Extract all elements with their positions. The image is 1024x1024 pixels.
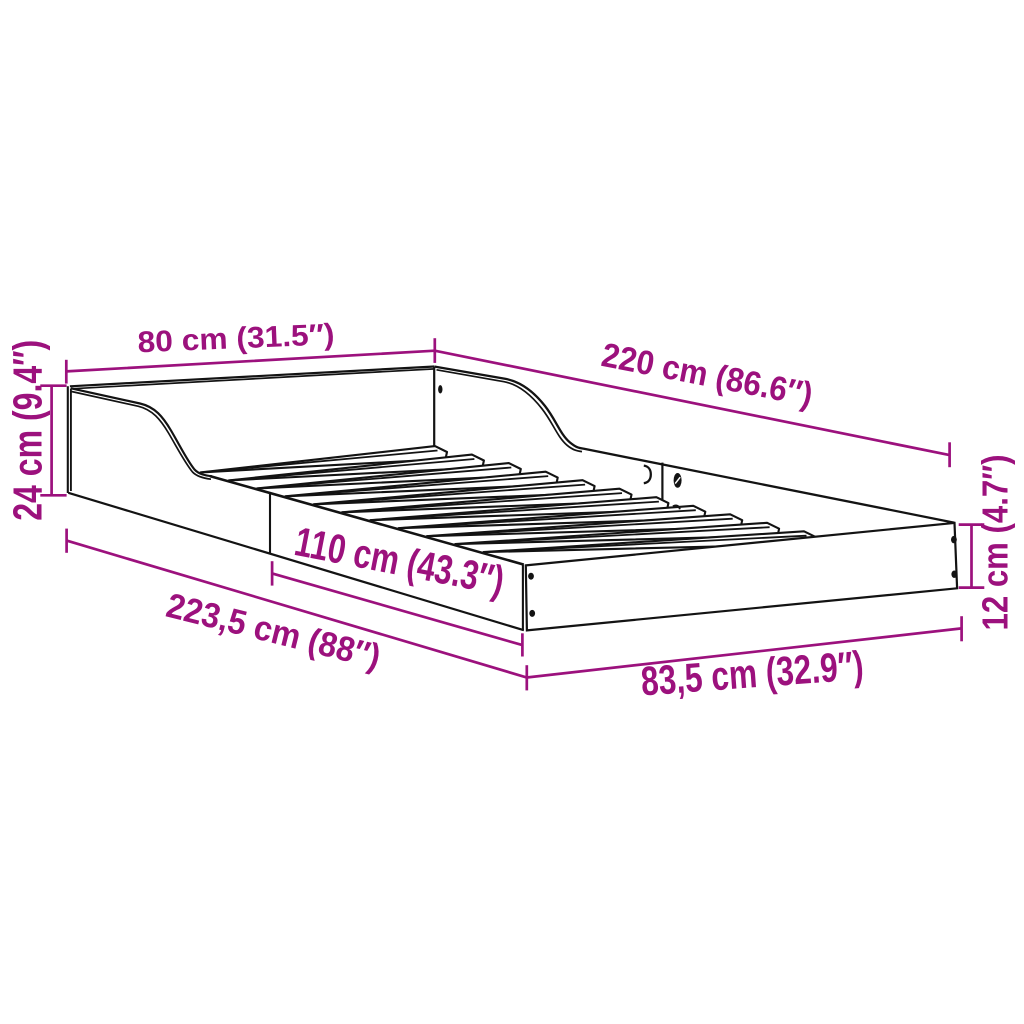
svg-text:12 cm (4.7″): 12 cm (4.7″) <box>975 455 1016 631</box>
svg-text:24 cm (9.4″): 24 cm (9.4″) <box>5 340 51 521</box>
